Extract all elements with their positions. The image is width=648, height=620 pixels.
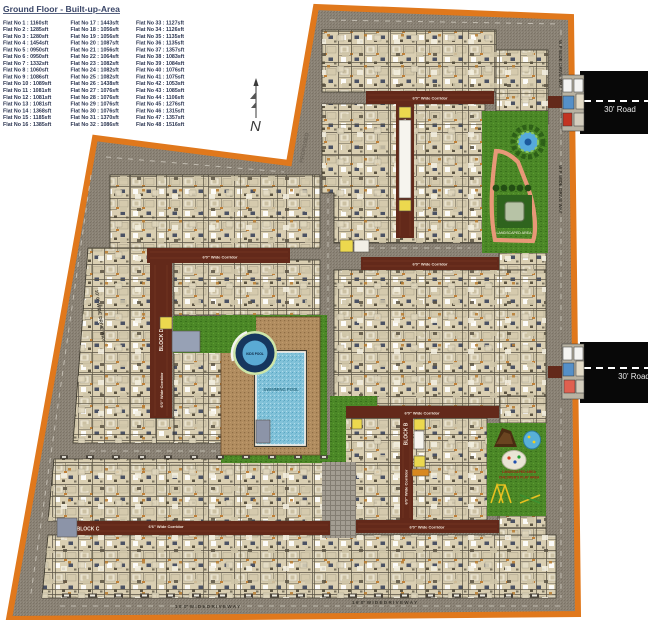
svg-text:Flat No 30 : 1076sft: Flat No 30 : 1076sft	[71, 108, 120, 114]
svg-text:Flat No 23 : 1082sft: Flat No 23 : 1082sft	[71, 61, 120, 67]
svg-text:Flat No 25 : 1082sft: Flat No 25 : 1082sft	[71, 74, 120, 80]
svg-text:Flat No 47 : 1357sft: Flat No 47 : 1357sft	[136, 115, 185, 121]
svg-text:Flat No 42 : 1053sft: Flat No 42 : 1053sft	[136, 81, 185, 87]
svg-text:Flat No 9 : 1086sft: Flat No 9 : 1086sft	[3, 74, 49, 80]
svg-text:1 6' 0" W I D E D R I V E W: 1 6' 0" W I D E D R I V E W A Y	[352, 600, 417, 605]
svg-text:Flat No 22 : 1064sft: Flat No 22 : 1064sft	[71, 54, 120, 60]
svg-text:Flat No 37 : 1357sft: Flat No 37 : 1357sft	[136, 47, 185, 53]
svg-text:Flat No 2 : 1285sft: Flat No 2 : 1285sft	[3, 27, 49, 33]
svg-text:Flat No 45 : 1276sft: Flat No 45 : 1276sft	[136, 102, 185, 108]
svg-text:LANDSCAPED AREA: LANDSCAPED AREA	[502, 470, 537, 474]
svg-text:1 0' 0" W I D E D R I V E W: 1 0' 0" W I D E D R I V E W A Y	[175, 604, 240, 609]
svg-text:Flat No 1 : 1160sft: Flat No 1 : 1160sft	[3, 20, 48, 26]
svg-text:W P WIDE DRIVE WAY: W P WIDE DRIVE WAY	[558, 40, 563, 89]
svg-text:Flat No 8 : 1060sft: Flat No 8 : 1060sft	[3, 68, 49, 74]
svg-text:Flat No 39 : 1084sft: Flat No 39 : 1084sft	[136, 61, 185, 67]
svg-text:Flat No 26 : 1438sft: Flat No 26 : 1438sft	[71, 81, 120, 87]
svg-text:Flat No 31 : 1370sft: Flat No 31 : 1370sft	[71, 115, 120, 121]
svg-text:Flat No 13 : 1081sft: Flat No 13 : 1081sft	[3, 102, 52, 108]
svg-text:Flat No 16 : 1385sft: Flat No 16 : 1385sft	[3, 122, 52, 128]
svg-text:6'0" Wide Corridor: 6'0" Wide Corridor	[412, 262, 447, 267]
svg-text:Flat No 21 : 1056sft: Flat No 21 : 1056sft	[71, 47, 120, 53]
svg-text:CHILDREN'S PLAY AREA: CHILDREN'S PLAY AREA	[499, 476, 540, 480]
svg-text:Flat No 4 : 1454sft: Flat No 4 : 1454sft	[3, 41, 49, 47]
svg-text:6'0" Wide Corridor: 6'0" Wide Corridor	[404, 469, 409, 504]
svg-text:KIDS POOL: KIDS POOL	[246, 352, 264, 356]
svg-text:Flat No 36 : 1135sft: Flat No 36 : 1135sft	[136, 41, 184, 47]
svg-text:6'6" Wide Corridor: 6'6" Wide Corridor	[148, 524, 183, 529]
svg-text:Flat No 38 : 1083sft: Flat No 38 : 1083sft	[136, 54, 185, 60]
svg-text:Flat No 29 : 1076sft: Flat No 29 : 1076sft	[71, 102, 120, 108]
svg-text:6'0" Wide Corridor: 6'0" Wide Corridor	[202, 255, 237, 260]
svg-text:SWIMMING POOL: SWIMMING POOL	[263, 387, 299, 392]
svg-text:Flat No 11 : 1081sft: Flat No 11 : 1081sft	[3, 88, 51, 94]
svg-text:6'0" Wide Corridor: 6'0" Wide Corridor	[409, 525, 444, 530]
svg-text:Flat No 19 : 1056sft: Flat No 19 : 1056sft	[71, 34, 120, 40]
svg-text:W P WIDE DRIVE WAY: W P WIDE DRIVE WAY	[558, 165, 563, 214]
svg-text:Flat No 14 : 1368sft: Flat No 14 : 1368sft	[3, 108, 52, 114]
svg-text:Flat No 7 : 1332sft: Flat No 7 : 1332sft	[3, 61, 49, 67]
svg-text:Flat No 34 : 1126sft: Flat No 34 : 1126sft	[136, 27, 184, 33]
svg-text:Flat No 28 : 1076sft: Flat No 28 : 1076sft	[71, 95, 120, 101]
svg-text:Flat No 3 : 1280sft: Flat No 3 : 1280sft	[3, 34, 49, 40]
svg-text:Flat No 24 : 1082sft: Flat No 24 : 1082sft	[71, 68, 120, 74]
svg-text:Ground Floor - Built-up-Area: Ground Floor - Built-up-Area	[3, 4, 120, 14]
svg-text:Flat No 20 : 1087sft: Flat No 20 : 1087sft	[71, 41, 120, 47]
svg-text:N: N	[250, 118, 261, 135]
svg-text:Flat No 32 : 1086sft: Flat No 32 : 1086sft	[71, 122, 120, 128]
svg-text:Flat No 12 : 1081sft: Flat No 12 : 1081sft	[3, 95, 52, 101]
svg-text:Flat No 41 : 1075sft: Flat No 41 : 1075sft	[136, 74, 185, 80]
svg-text:Flat No 17 : 1443sft: Flat No 17 : 1443sft	[71, 20, 120, 26]
svg-text:BLOCK D: BLOCK D	[159, 328, 165, 351]
svg-text:Flat No 33 : 1127sft: Flat No 33 : 1127sft	[136, 20, 184, 26]
svg-text:6'0" Wide Corridor: 6'0" Wide Corridor	[159, 372, 164, 407]
svg-text:30' Road: 30' Road	[618, 372, 648, 381]
svg-text:Flat No 40 : 1076sft: Flat No 40 : 1076sft	[136, 68, 185, 74]
svg-text:Flat No 5 : 0950sft: Flat No 5 : 0950sft	[3, 47, 49, 53]
svg-text:Flat No 35 : 1135sft: Flat No 35 : 1135sft	[136, 34, 184, 40]
svg-text:Flat No 27 : 1076sft: Flat No 27 : 1076sft	[71, 88, 120, 94]
svg-text:BLOCK C: BLOCK C	[77, 527, 100, 533]
svg-text:Flat No 15 : 1185sft: Flat No 15 : 1185sft	[3, 115, 51, 121]
svg-text:6'0" Wide Corridor: 6'0" Wide Corridor	[404, 411, 439, 416]
svg-text:30' Road: 30' Road	[604, 105, 636, 114]
svg-text:Flat No 10 : 1089sft: Flat No 10 : 1089sft	[3, 81, 52, 87]
svg-text:BLOCK B: BLOCK B	[404, 422, 410, 445]
svg-text:LANDSCAPED AREA: LANDSCAPED AREA	[497, 231, 533, 235]
svg-text:Flat No 44 : 1106sft: Flat No 44 : 1106sft	[136, 95, 184, 101]
svg-text:6'0" Wide Corridor: 6'0" Wide Corridor	[412, 96, 447, 101]
svg-text:Flat No 43 : 1085sft: Flat No 43 : 1085sft	[136, 88, 185, 94]
svg-text:Flat No 48 : 1516sft: Flat No 48 : 1516sft	[136, 122, 185, 128]
svg-text:Flat No 6 : 0950sft: Flat No 6 : 0950sft	[3, 54, 49, 60]
svg-text:Flat No 18 : 1056sft: Flat No 18 : 1056sft	[71, 27, 120, 33]
svg-text:Flat No 46 : 1315sft: Flat No 46 : 1315sft	[136, 108, 185, 114]
